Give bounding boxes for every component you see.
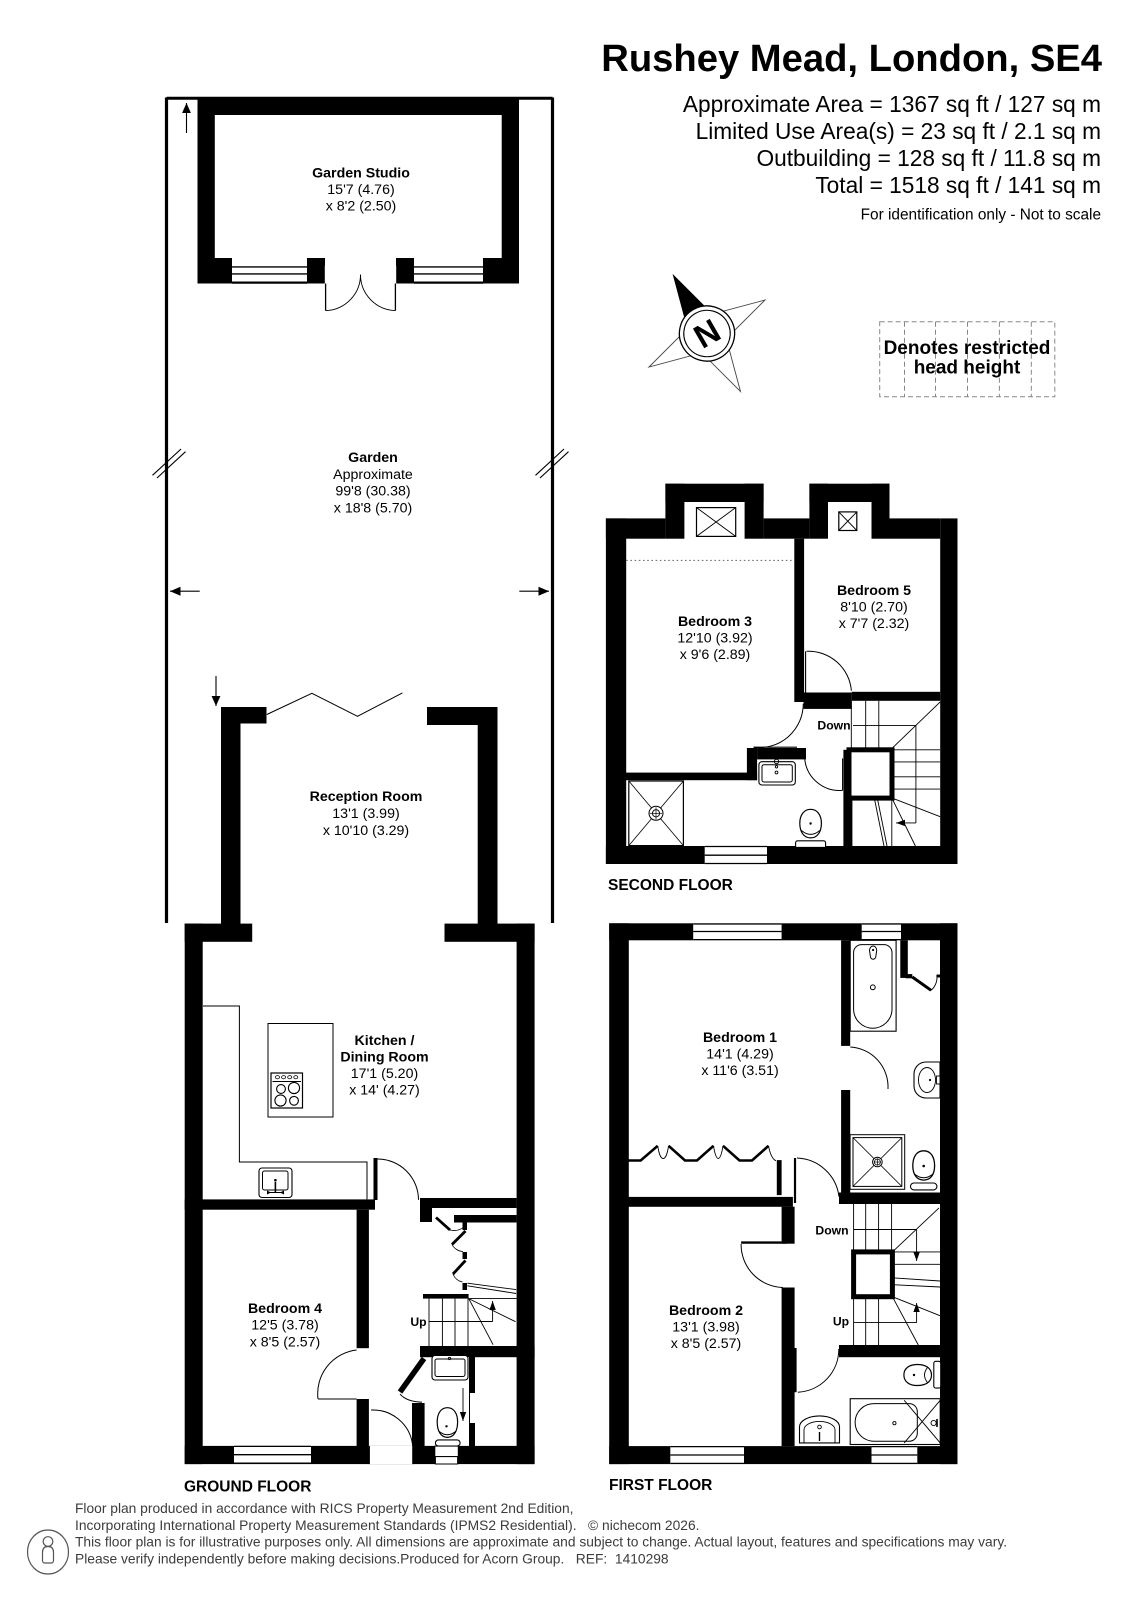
svg-text:Approximate: Approximate xyxy=(333,467,413,483)
svg-text:Reception Room: Reception Room xyxy=(310,789,423,805)
svg-text:Incorporating International Pr: Incorporating International Property Mea… xyxy=(75,1518,699,1533)
svg-text:13'1 (3.98): 13'1 (3.98) xyxy=(672,1320,739,1336)
svg-text:x 8'5 (2.57): x 8'5 (2.57) xyxy=(250,1334,321,1350)
svg-text:Rushey Mead, London, SE4: Rushey Mead, London, SE4 xyxy=(601,37,1103,80)
svg-text:x 9'6 (2.89): x 9'6 (2.89) xyxy=(680,647,751,663)
svg-text:GROUND FLOOR: GROUND FLOOR xyxy=(184,1479,311,1496)
svg-text:14'1 (4.29): 14'1 (4.29) xyxy=(706,1047,773,1063)
svg-text:Bedroom 1: Bedroom 1 xyxy=(703,1030,777,1046)
svg-text:x 18'8 (5.70): x 18'8 (5.70) xyxy=(334,500,412,516)
svg-text:Dining Room: Dining Room xyxy=(340,1050,428,1066)
svg-text:8'10 (2.70): 8'10 (2.70) xyxy=(840,600,907,616)
svg-text:head height: head height xyxy=(914,358,1021,379)
svg-text:Approximate Area = 1367 sq ft: Approximate Area = 1367 sq ft / 127 sq m xyxy=(683,91,1101,117)
svg-text:15'7 (4.76): 15'7 (4.76) xyxy=(327,182,394,198)
svg-text:x 10'10 (3.29): x 10'10 (3.29) xyxy=(323,823,409,839)
svg-text:Kitchen /: Kitchen / xyxy=(355,1033,415,1049)
svg-text:Down: Down xyxy=(817,719,850,733)
svg-text:17'1 (5.20): 17'1 (5.20) xyxy=(351,1066,418,1082)
svg-text:Please verify independently be: Please verify independently before makin… xyxy=(75,1551,669,1566)
svg-text:Total = 1518 sq ft / 141 sq m: Total = 1518 sq ft / 141 sq m xyxy=(815,172,1101,198)
svg-text:Floor plan produced in accorda: Floor plan produced in accordance with R… xyxy=(75,1501,573,1516)
svg-text:x 11'6 (3.51): x 11'6 (3.51) xyxy=(701,1063,778,1079)
svg-text:x 8'2 (2.50): x 8'2 (2.50) xyxy=(326,199,397,215)
svg-text:FIRST FLOOR: FIRST FLOOR xyxy=(609,1477,712,1494)
svg-text:Up: Up xyxy=(410,1315,426,1329)
svg-text:Denotes restricted: Denotes restricted xyxy=(884,338,1051,359)
svg-text:SECOND FLOOR: SECOND FLOOR xyxy=(608,877,733,894)
svg-text:Outbuilding = 128 sq ft / 11.8: Outbuilding = 128 sq ft / 11.8 sq m xyxy=(756,145,1101,171)
svg-text:Bedroom 5: Bedroom 5 xyxy=(837,583,911,599)
svg-text:99'8 (30.38): 99'8 (30.38) xyxy=(335,484,410,500)
svg-text:For identification only - Not: For identification only - Not to scale xyxy=(861,207,1101,224)
svg-text:Bedroom 2: Bedroom 2 xyxy=(669,1303,743,1319)
svg-text:Down: Down xyxy=(815,1223,848,1237)
svg-text:Garden Studio: Garden Studio xyxy=(312,166,410,182)
svg-text:12'10 (3.92): 12'10 (3.92) xyxy=(677,631,752,647)
svg-text:x 7'7 (2.32): x 7'7 (2.32) xyxy=(839,616,910,632)
svg-text:x 14' (4.27): x 14' (4.27) xyxy=(349,1082,420,1098)
svg-text:12'5 (3.78): 12'5 (3.78) xyxy=(251,1318,318,1334)
svg-text:13'1 (3.99): 13'1 (3.99) xyxy=(332,806,399,822)
svg-text:Limited Use Area(s) = 23 sq ft: Limited Use Area(s) = 23 sq ft / 2.1 sq … xyxy=(696,118,1101,144)
svg-text:Garden: Garden xyxy=(348,450,398,466)
svg-text:Up: Up xyxy=(833,1315,849,1329)
svg-text:This floor plan is for illustr: This floor plan is for illustrative purp… xyxy=(75,1535,1007,1550)
svg-text:x 8'5 (2.57): x 8'5 (2.57) xyxy=(671,1336,742,1352)
svg-text:Bedroom 3: Bedroom 3 xyxy=(678,614,752,630)
svg-text:Bedroom 4: Bedroom 4 xyxy=(248,1301,322,1317)
